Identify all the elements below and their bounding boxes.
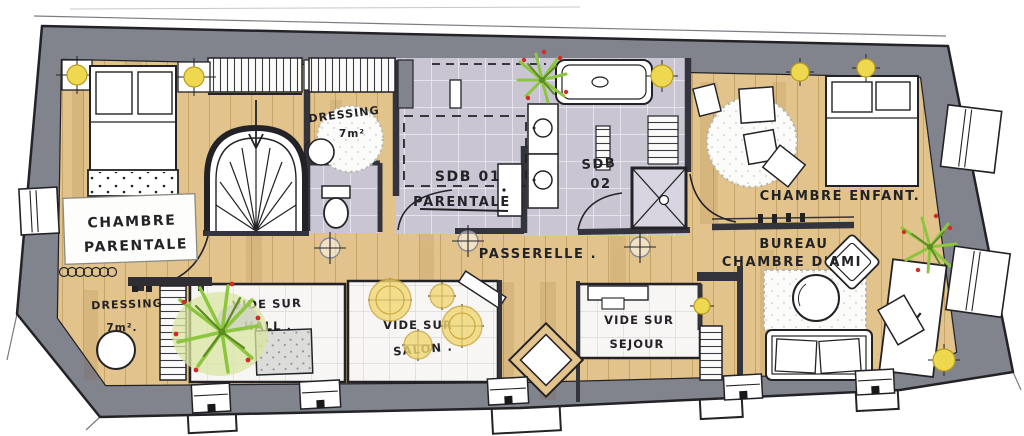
label-dressing-bas-2: 7m².: [106, 322, 137, 334]
coffee-table: [793, 275, 839, 321]
cushion: [739, 87, 775, 123]
double-washbasin: [528, 104, 558, 208]
radiator-bench: [128, 277, 212, 286]
label-dressing-bas-1: DRESSING: [91, 297, 163, 312]
window: [487, 377, 528, 405]
label-vide-sejour-1: VIDE SUR: [604, 313, 674, 327]
stool: [308, 139, 334, 165]
bathtub: [556, 60, 652, 104]
window: [855, 369, 894, 395]
bed-double: [88, 66, 178, 196]
window: [299, 380, 340, 409]
window: [723, 374, 762, 400]
stair-straight-flight: [208, 58, 302, 92]
label-sdb01-2: PARENTALE: [413, 195, 511, 210]
window: [19, 187, 59, 235]
closet-rack: [309, 58, 395, 92]
label-bureau-2: CHAMBRE D'AMI: [722, 255, 862, 270]
toilet-bowl: [324, 198, 348, 228]
toilet-tank: [322, 186, 350, 198]
bed-child: [826, 76, 918, 186]
window: [941, 105, 1002, 173]
ceiling-light: [172, 58, 216, 96]
label-passerelle: PASSERELLE .: [479, 247, 597, 262]
label-dressing-haut-2: 7m²: [339, 128, 365, 140]
shelf-small: [602, 298, 624, 309]
towel-radiator: [648, 116, 678, 164]
window: [946, 246, 1010, 317]
floor-plan: CHAMBRE PARENTALE DRESSING 7m² SDB 01 PA…: [0, 0, 1024, 436]
window: [191, 383, 230, 413]
ladder: [700, 326, 722, 380]
floor-plan-drawing: CHAMBRE PARENTALE DRESSING 7m² SDB 01 PA…: [0, 0, 1024, 436]
label-vide-sejour-2: SEJOUR: [610, 337, 665, 351]
label-sdb02-2: 02: [590, 177, 611, 192]
shower-cabin: [632, 168, 686, 228]
label-sdb01-1: SDB 01: [435, 169, 501, 185]
label-bureau-1: BUREAU: [759, 237, 828, 252]
label-chambre-enfant: CHAMBRE ENFANT.: [760, 189, 921, 204]
room-wc: [322, 186, 350, 228]
label-sdb02-1: SDB: [581, 156, 617, 173]
label-chambre-parentale-1: CHAMBRE: [87, 212, 176, 231]
